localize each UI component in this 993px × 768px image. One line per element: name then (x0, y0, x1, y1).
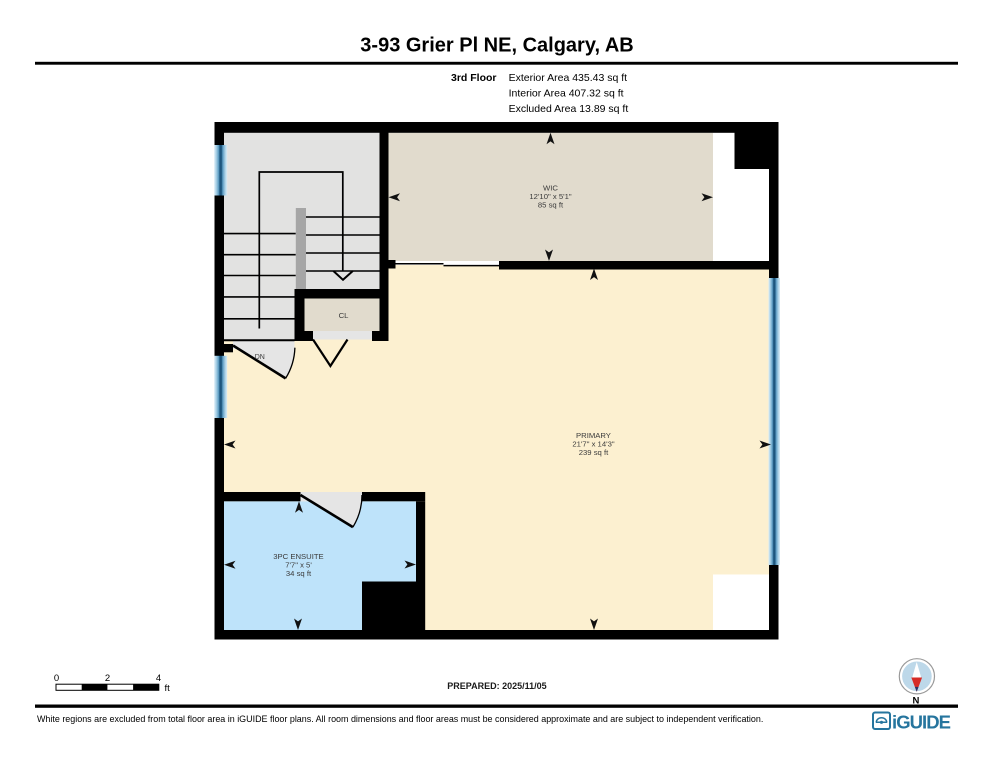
svg-text:Interior Area 407.32 sq ft: Interior Area 407.32 sq ft (509, 88, 624, 100)
svg-text:iGUIDE: iGUIDE (892, 712, 951, 733)
svg-text:Exterior Area 435.43 sq ft: Exterior Area 435.43 sq ft (509, 72, 628, 84)
svg-text:2: 2 (105, 673, 110, 684)
svg-text:ft: ft (165, 683, 171, 694)
svg-text:3-93 Grier Pl NE, Calgary, AB: 3-93 Grier Pl NE, Calgary, AB (360, 35, 633, 57)
svg-text:DN: DN (255, 354, 265, 361)
svg-text:239 sq ft: 239 sq ft (579, 448, 609, 457)
svg-text:4: 4 (156, 673, 161, 684)
svg-text:85 sq ft: 85 sq ft (538, 200, 564, 209)
svg-text:Excluded Area 13.89 sq ft: Excluded Area 13.89 sq ft (509, 103, 629, 115)
svg-text:PREPARED: 2025/11/05: PREPARED: 2025/11/05 (447, 681, 546, 691)
svg-text:White regions are excluded fro: White regions are excluded from total fl… (37, 714, 763, 724)
svg-text:34 sq ft: 34 sq ft (286, 569, 312, 578)
svg-text:3rd Floor: 3rd Floor (451, 72, 497, 84)
svg-text:CL: CL (339, 311, 350, 320)
svg-text:0: 0 (54, 673, 59, 684)
